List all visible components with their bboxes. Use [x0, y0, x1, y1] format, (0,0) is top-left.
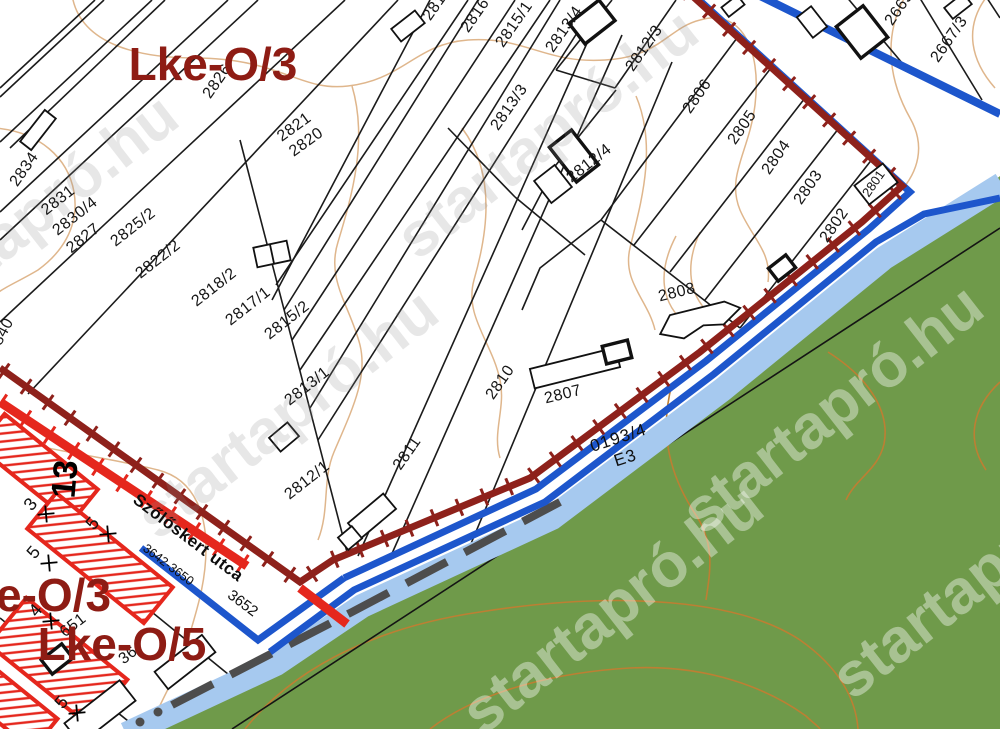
building	[602, 340, 632, 364]
zone-label-lke-o3: Lke-O/3	[129, 38, 298, 90]
zone-label-lke-o5: Lke-O/5	[38, 618, 207, 670]
zoning-map-canvas[interactable]: startapró.hu startapró.hu startapró.hu s…	[0, 0, 1000, 729]
zone-label-lke-o3-partial: e-O/3	[0, 569, 111, 621]
road-number-label: 13	[44, 459, 85, 500]
zoning-map[interactable]: startapró.hu startapró.hu startapró.hu s…	[0, 0, 1000, 729]
